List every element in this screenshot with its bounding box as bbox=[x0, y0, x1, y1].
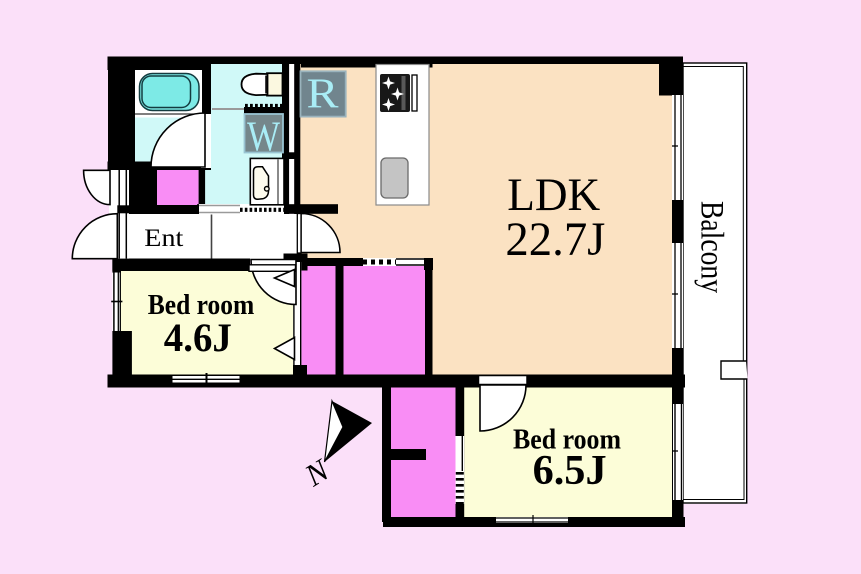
svg-text:Ent: Ent bbox=[144, 225, 183, 252]
svg-text:Balcony: Balcony bbox=[694, 201, 730, 293]
svg-text:R: R bbox=[307, 72, 339, 118]
svg-text:6.5J: 6.5J bbox=[533, 447, 607, 494]
svg-text:4.6J: 4.6J bbox=[164, 315, 232, 360]
svg-text:22.7J: 22.7J bbox=[505, 214, 605, 266]
svg-text:W: W bbox=[247, 115, 280, 161]
